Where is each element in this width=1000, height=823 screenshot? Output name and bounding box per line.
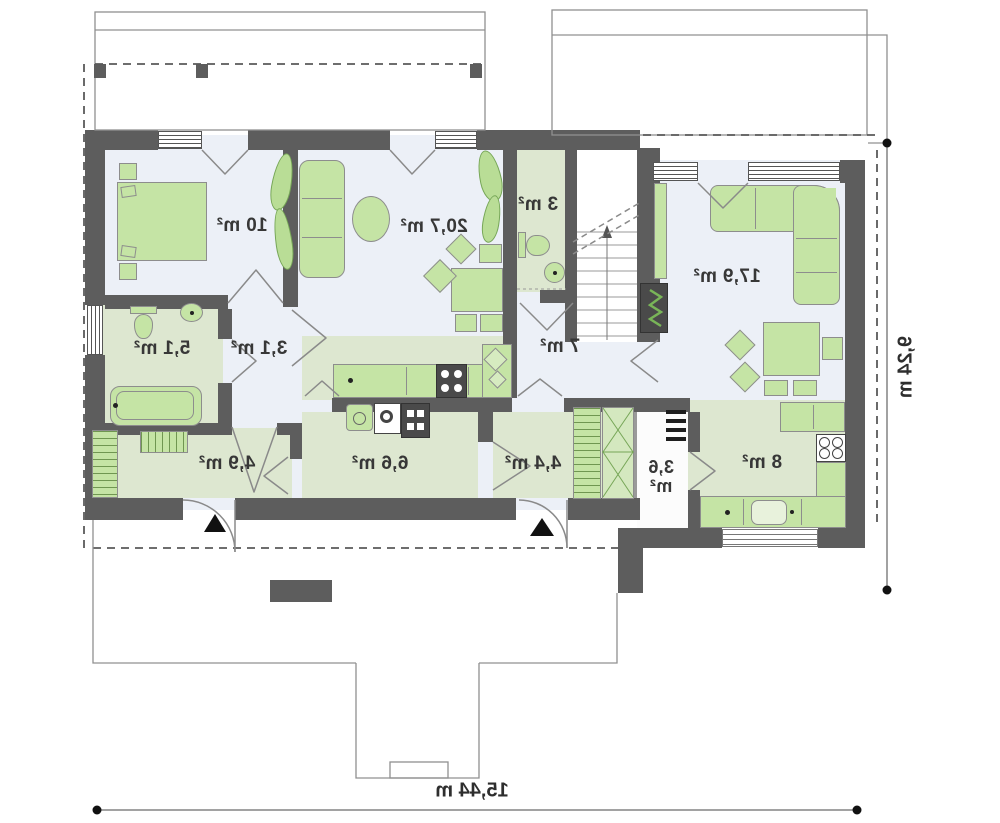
room-utility-label: 6,6 m² — [352, 453, 409, 475]
room-hall-label: 7 m² — [540, 336, 580, 358]
lower-outline — [93, 520, 617, 778]
post-icon — [470, 64, 482, 78]
dimension-dot — [93, 806, 102, 815]
wardrobe-cross-lines — [602, 408, 634, 497]
room-corridor-label: 4,9 m² — [199, 453, 256, 475]
dimension-dot — [853, 806, 862, 815]
dimension-label-depth: 9,24 m — [895, 336, 918, 398]
post-icon — [196, 64, 208, 78]
room-bathroom-label: 5,1 m² — [134, 338, 191, 360]
room-pantry-label: 3,6 m² — [648, 458, 674, 496]
room-wc-label: 3 m² — [518, 194, 558, 216]
post-icon — [94, 64, 106, 78]
room-bedroom-label: 10 m² — [216, 215, 267, 237]
chimney-icon — [270, 580, 332, 602]
room-entry-label: 4,4 m² — [505, 453, 562, 475]
room-family-label: 17,9 m² — [693, 266, 761, 288]
room-living-label: 20,7 m² — [400, 216, 468, 238]
dimension-dot — [883, 139, 892, 148]
entrance-arrow-icon — [530, 518, 554, 536]
entrance-arrow-icon — [204, 514, 226, 532]
room-pantry-label-unit: m² — [648, 477, 674, 496]
fireplace-flame-icon — [650, 290, 661, 326]
plan-linework — [0, 0, 1000, 823]
dimension-label-width: 15,44 m — [435, 780, 508, 803]
terrace-top-right — [552, 10, 887, 143]
room-hall-small-label: 3,1 m² — [231, 338, 288, 360]
terrace-top-left — [95, 12, 485, 130]
overhang-dashed-lines — [84, 64, 877, 548]
dimension-dot — [883, 586, 892, 595]
room-pantry-label-value: 3,6 — [648, 458, 674, 477]
door-icon — [202, 150, 748, 494]
floor-plan: 10 m² 20,7 m² 3 m² 17,9 m² 5,1 m² 3,1 m²… — [0, 0, 1000, 823]
entrance-door-icon — [183, 500, 567, 552]
room-kitchen-label: 8 m² — [742, 452, 782, 474]
